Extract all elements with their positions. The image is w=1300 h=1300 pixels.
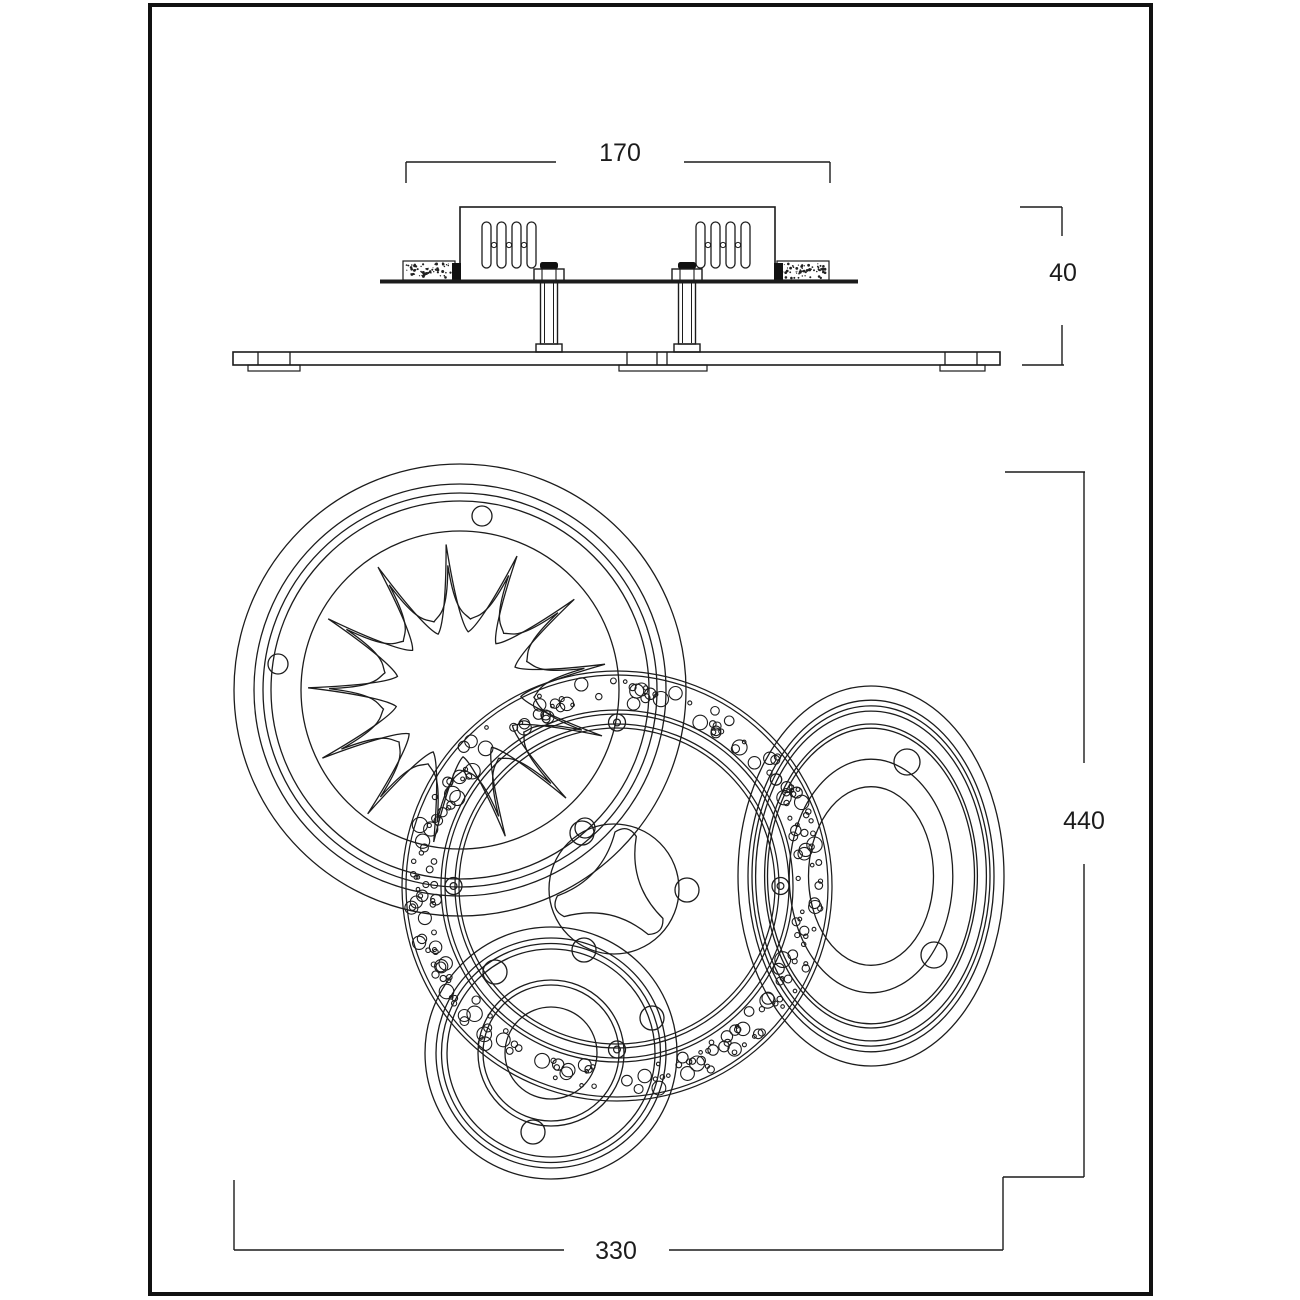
dimension-label-overall-width: 330: [595, 1237, 637, 1265]
side-view-section: [233, 207, 1000, 371]
dimension-label-housing-width: 170: [599, 139, 641, 167]
dimension-lines: [234, 162, 1085, 1250]
dimension-label-recess-height: 40: [1049, 259, 1077, 287]
front-view-disks: [234, 464, 1004, 1179]
drawing-canvas: 170 40 440 330: [0, 0, 1300, 1300]
technical-drawing-page: 170 40 440 330: [0, 0, 1300, 1300]
drawing-frame: [150, 5, 1151, 1294]
dimension-label-overall-height: 440: [1063, 807, 1105, 835]
